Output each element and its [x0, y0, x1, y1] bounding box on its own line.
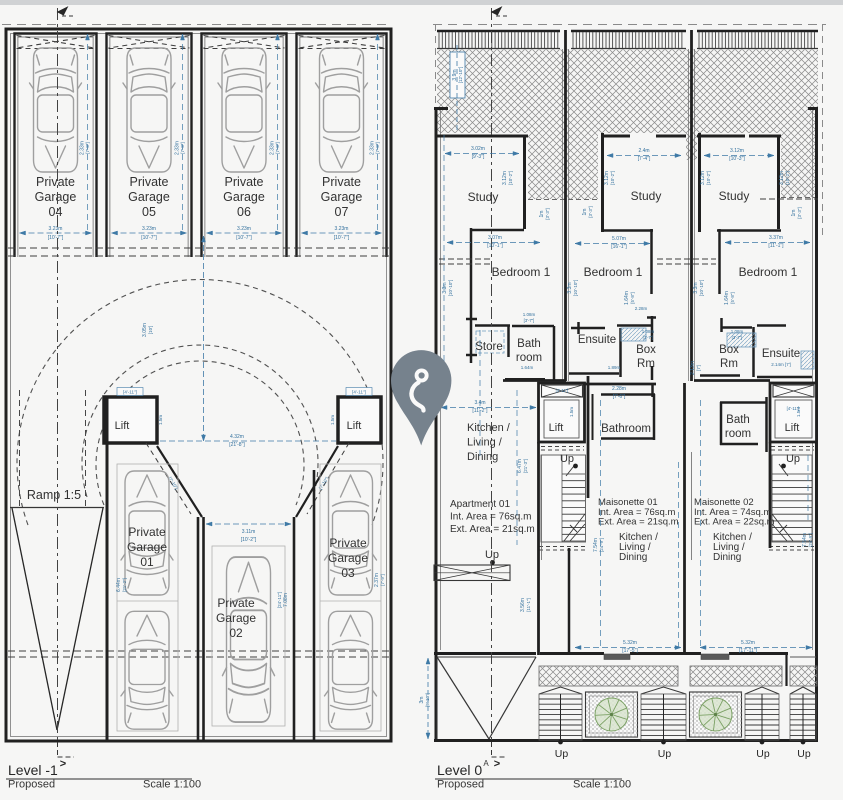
svg-text:Up: Up [756, 748, 770, 760]
svg-text:07: 07 [335, 205, 349, 219]
svg-text:Study: Study [631, 189, 662, 203]
svg-text:[3'-3"]: [3'-3"] [545, 208, 550, 219]
svg-text:[3'-7"]: [3'-7"] [524, 318, 535, 323]
svg-text:[3'-7"]: [3'-7"] [643, 335, 654, 340]
svg-text:Living /: Living / [467, 437, 503, 449]
svg-text:Kitchen /: Kitchen / [467, 422, 511, 434]
svg-text:Box: Box [719, 344, 739, 356]
svg-text:3.23m: 3.23m [335, 226, 349, 232]
svg-text:[10'-2"]: [10'-2"] [241, 537, 257, 543]
svg-text:Private: Private [329, 536, 367, 550]
svg-text:04: 04 [49, 205, 63, 219]
svg-text:Bath: Bath [726, 414, 750, 426]
svg-text:A: A [483, 759, 489, 768]
svg-text:3.02m: 3.02m [471, 146, 485, 152]
svg-text:>: > [60, 758, 66, 770]
svg-text:Bathroom: Bathroom [601, 423, 651, 435]
svg-text:3.23m: 3.23m [142, 226, 156, 232]
svg-text:[7'-8"]: [7'-8"] [180, 142, 185, 153]
svg-text:Bedroom 1: Bedroom 1 [739, 265, 798, 279]
svg-text:[10'-10"]: [10'-10"] [448, 280, 453, 296]
svg-text:[7'-4"]: [7'-4"] [638, 156, 651, 162]
svg-text:[7']: [7'] [696, 365, 701, 371]
svg-text:Study: Study [468, 190, 499, 204]
svg-text:[10'-10"]: [10'-10"] [699, 280, 704, 296]
svg-text:[10'-2"]: [10'-2"] [508, 171, 513, 185]
svg-text:3.11m: 3.11m [242, 529, 256, 535]
svg-text:Scale 1:100: Scale 1:100 [143, 779, 201, 791]
svg-text:5.07m: 5.07m [612, 236, 626, 242]
svg-text:1.5m: 1.5m [330, 415, 335, 425]
svg-text:Dining: Dining [713, 552, 741, 563]
svg-text:03: 03 [341, 566, 355, 580]
svg-text:[5'-8"]: [5'-8"] [730, 292, 735, 303]
svg-text:Dining: Dining [467, 451, 498, 463]
svg-text:[7'-9"]: [7'-9"] [380, 574, 385, 585]
svg-text:2.14m [7']: 2.14m [7'] [771, 362, 791, 367]
svg-text:05: 05 [142, 205, 156, 219]
svg-text:[5'-8"]: [5'-8"] [630, 292, 635, 303]
svg-text:5.32m: 5.32m [741, 640, 755, 646]
svg-text:Ext. Area = 22sq.m: Ext. Area = 22sq.m [694, 517, 775, 528]
svg-text:[21'-3"]: [21'-3"] [523, 459, 528, 473]
svg-text:3.07m: 3.07m [488, 235, 502, 241]
svg-text:[17'-11"]: [17'-11"] [739, 648, 758, 654]
svg-text:2.4m: 2.4m [638, 148, 649, 154]
svg-text:[10'-1"]: [10'-1"] [487, 243, 503, 249]
svg-text:Level -1: Level -1 [8, 762, 58, 778]
svg-text:Rm: Rm [637, 358, 655, 370]
svg-text:[11'-1"]: [11'-1"] [768, 243, 784, 249]
svg-text:[21'-2"]: [21'-2"] [122, 578, 127, 592]
svg-text:[3'-7"]: [3'-7"] [732, 335, 743, 340]
svg-text:[11'-1"]: [11'-1"] [526, 598, 531, 612]
svg-text:5.32m: 5.32m [623, 640, 637, 646]
svg-text:[3'-3"]: [3'-3"] [588, 206, 593, 217]
svg-text:[10'-2"]: [10'-2"] [706, 171, 711, 185]
svg-text:Study: Study [719, 189, 750, 203]
svg-text:Up: Up [555, 748, 569, 760]
svg-text:Up: Up [797, 748, 811, 760]
svg-text:3.23m: 3.23m [49, 226, 63, 232]
svg-text:1.08m: 1.08m [642, 329, 655, 334]
svg-text:1.5m: 1.5m [569, 407, 574, 417]
svg-text:1.08m: 1.08m [523, 312, 536, 317]
svg-text:[16'-1"]: [16'-1"] [611, 244, 627, 250]
svg-text:[4'-11"]: [4'-11"] [787, 406, 800, 411]
svg-text:Rm: Rm [720, 358, 738, 370]
svg-text:Apartment 01: Apartment 01 [450, 499, 510, 510]
svg-text:3.23m: 3.23m [237, 226, 251, 232]
svg-text:Lift: Lift [785, 422, 800, 434]
svg-text:Garage: Garage [127, 540, 167, 554]
svg-text:[10'-2"]: [10'-2"] [785, 171, 790, 185]
svg-text:room: room [725, 428, 751, 440]
svg-text:[17'-5"]: [17'-5"] [622, 648, 638, 654]
svg-text:[4'-11"]: [4'-11"] [123, 390, 137, 395]
svg-text:>: > [494, 758, 500, 770]
svg-text:Box: Box [636, 344, 656, 356]
svg-text:Private: Private [36, 175, 75, 189]
svg-text:Private: Private [225, 175, 264, 189]
svg-text:[3'-3"]: [3'-3"] [797, 207, 802, 218]
svg-text:[10'-3"]: [10'-3"] [729, 156, 745, 162]
svg-text:[24'-9"]: [24'-9"] [808, 533, 813, 547]
svg-text:[7'-8"]: [7'-8"] [275, 142, 280, 153]
svg-text:Private: Private [322, 175, 361, 189]
svg-text:1.89m: 1.89m [608, 365, 621, 370]
svg-text:[12'-10"]: [12'-10"] [458, 67, 463, 83]
svg-text:Private: Private [217, 596, 255, 610]
svg-text:Private: Private [128, 525, 166, 539]
svg-text:Ext. Area = 21sq.m: Ext. Area = 21sq.m [598, 517, 679, 528]
svg-text:[4'-11"]: [4'-11"] [352, 390, 366, 395]
svg-text:Ensuite: Ensuite [762, 348, 800, 360]
svg-text:Lift: Lift [347, 420, 362, 432]
svg-text:Level 0: Level 0 [437, 762, 482, 778]
svg-text:[10'-7"]: [10'-7"] [334, 235, 350, 241]
svg-text:1.5m: 1.5m [158, 415, 163, 425]
svg-text:[7'-8"]: [7'-8"] [375, 142, 380, 153]
svg-text:02: 02 [229, 626, 243, 640]
svg-text:Garage: Garage [321, 190, 363, 204]
svg-text:[10']: [10'] [148, 326, 153, 334]
svg-text:Private: Private [130, 175, 169, 189]
svg-text:Proposed: Proposed [437, 779, 484, 791]
svg-text:Dining: Dining [619, 552, 647, 563]
svg-text:3.12m: 3.12m [730, 148, 744, 154]
svg-text:[10'-2"]: [10'-2"] [610, 171, 615, 185]
svg-text:01: 01 [140, 555, 154, 569]
svg-text:2.28m: 2.28m [612, 386, 626, 392]
svg-text:[9'-3"]: [9'-3"] [472, 154, 485, 160]
svg-text:Garage: Garage [328, 551, 368, 565]
svg-text:Garage: Garage [223, 190, 265, 204]
svg-text:3.37m: 3.37m [769, 235, 783, 241]
svg-text:Garage: Garage [216, 611, 256, 625]
svg-text:room: room [516, 352, 542, 364]
svg-text:Int. Area = 76sq.m: Int. Area = 76sq.m [450, 512, 531, 523]
svg-text:[24'-11"]: [24'-11"] [277, 592, 282, 608]
svg-text:Up: Up [560, 453, 574, 465]
svg-text:1.64m: 1.64m [521, 365, 534, 370]
svg-text:Ensuite: Ensuite [578, 334, 616, 346]
svg-text:4.32m: 4.32m [230, 434, 244, 440]
svg-text:Scale 1:100: Scale 1:100 [573, 779, 631, 791]
svg-text:Ext. Area = 21sq.m: Ext. Area = 21sq.m [450, 524, 535, 535]
svg-text:Store: Store [475, 341, 503, 353]
svg-text:06: 06 [237, 205, 251, 219]
svg-text:Bedroom 1: Bedroom 1 [584, 265, 643, 279]
svg-text:Up: Up [786, 453, 800, 465]
svg-text:[4'-11"]: [4'-11"] [556, 388, 569, 393]
svg-text:7.08m: 7.08m [283, 593, 289, 607]
svg-text:[24'-9"]: [24'-9"] [599, 538, 604, 552]
svg-text:Bedroom 1: Bedroom 1 [492, 265, 551, 279]
svg-text:[10'-7"]: [10'-7"] [141, 235, 157, 241]
svg-text:Up: Up [658, 748, 672, 760]
svg-text:[7'-8"]: [7'-8"] [85, 142, 90, 153]
svg-text:Garage: Garage [128, 190, 170, 204]
svg-text:Bath: Bath [517, 338, 541, 350]
svg-text:[10'-7"]: [10'-7"] [48, 235, 64, 241]
svg-text:[10'-7"]: [10'-7"] [236, 235, 252, 241]
svg-text:[9'-10"]: [9'-10"] [425, 693, 430, 707]
svg-text:1.08m: 1.08m [731, 329, 744, 334]
svg-text:Lift: Lift [115, 420, 130, 432]
svg-text:[21'-8"]: [21'-8"] [229, 442, 245, 448]
svg-text:Garage: Garage [35, 190, 77, 204]
svg-text:Proposed: Proposed [8, 779, 55, 791]
svg-text:Ramp 1:5: Ramp 1:5 [27, 488, 81, 502]
svg-text:[7'-6"]: [7'-6"] [613, 394, 626, 400]
svg-text:2.28m: 2.28m [635, 306, 648, 311]
svg-text:Lift: Lift [549, 422, 564, 434]
svg-text:[10'-10"]: [10'-10"] [573, 280, 578, 296]
